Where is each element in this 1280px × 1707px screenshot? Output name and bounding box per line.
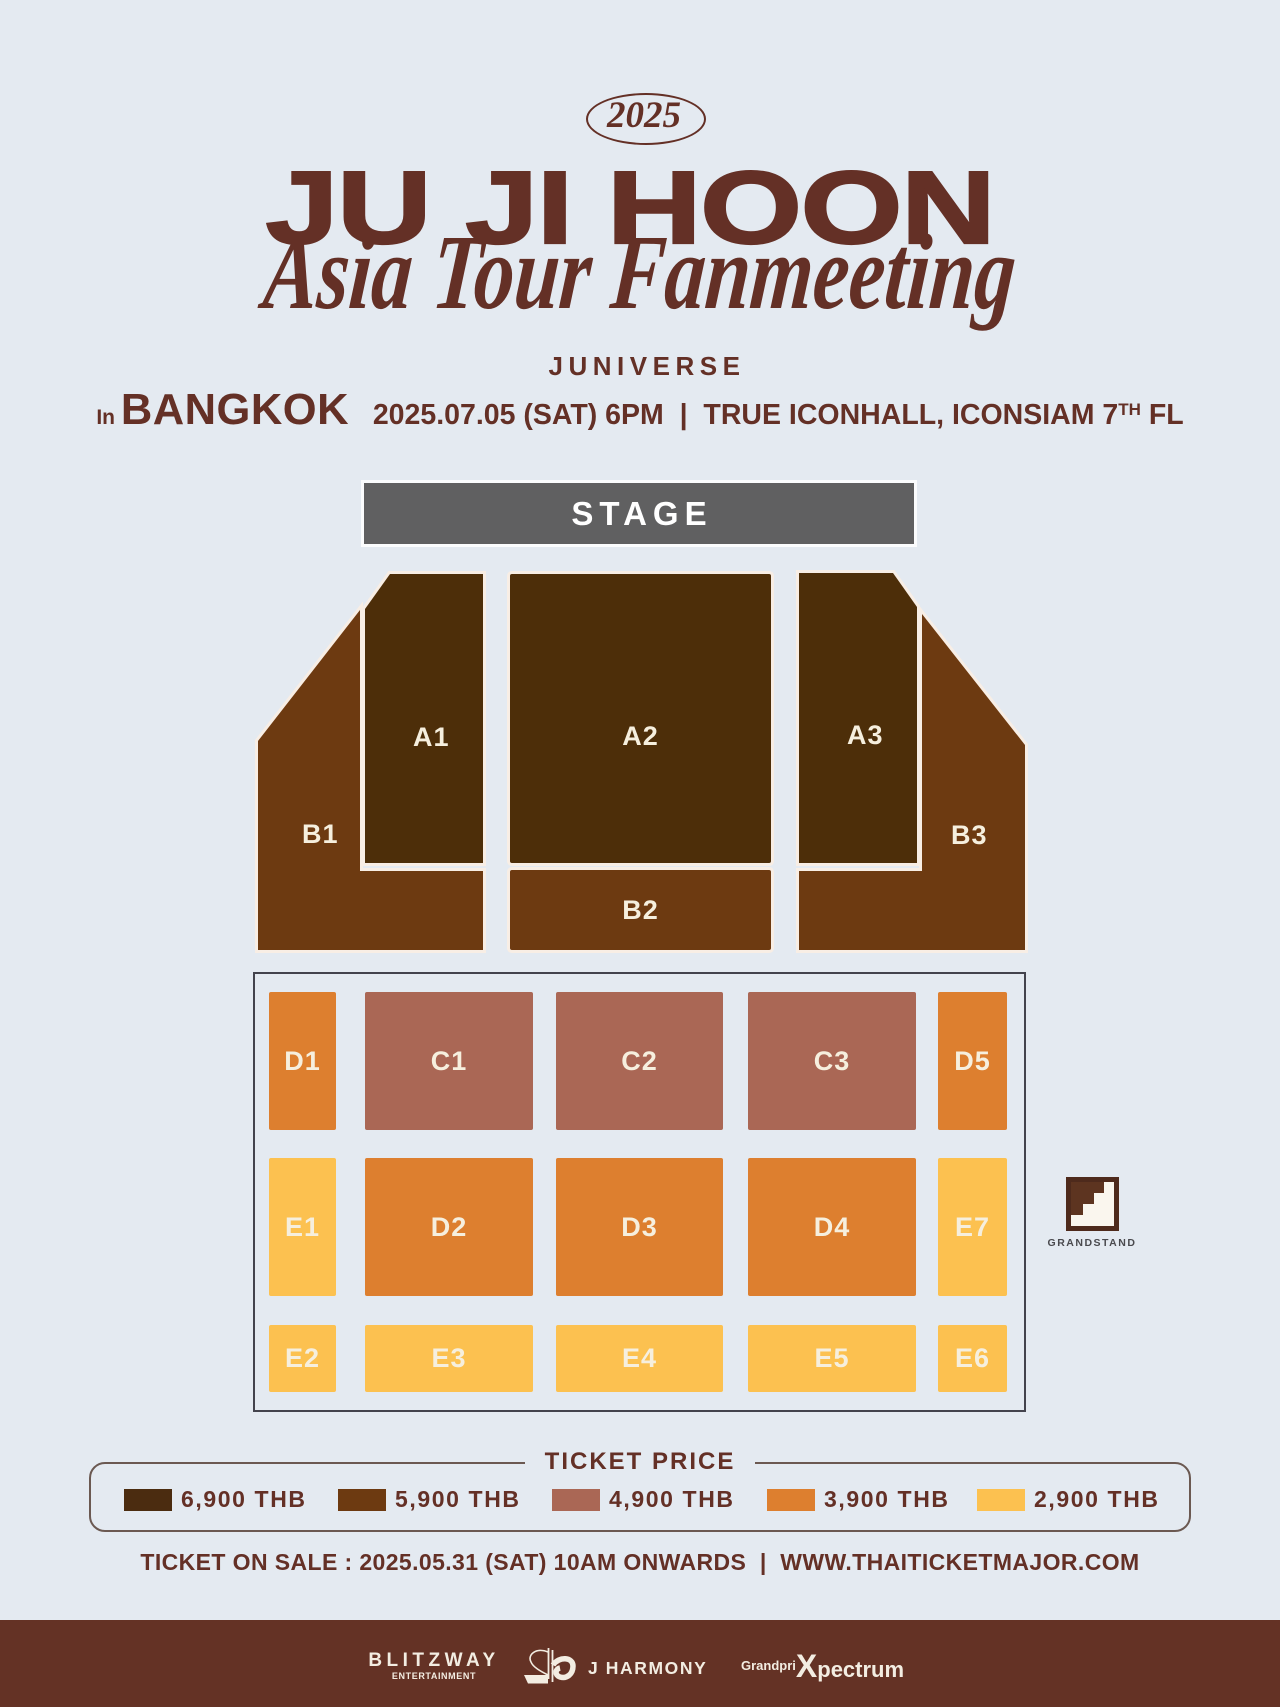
svg-text:B1: B1 — [302, 819, 339, 849]
svg-text:B3: B3 — [951, 820, 988, 850]
svg-text:A1: A1 — [413, 722, 450, 752]
